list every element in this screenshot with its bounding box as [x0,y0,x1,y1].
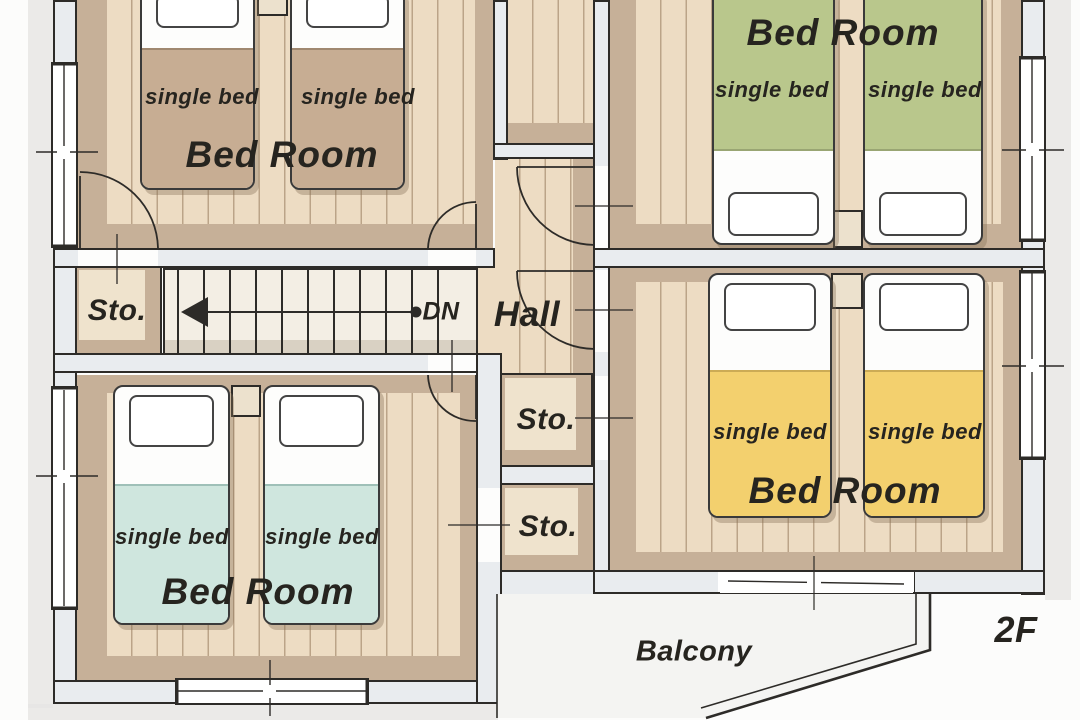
door-opening-storage-left [78,250,158,266]
bed-label: single bed [868,77,982,103]
wall-hall-left [493,0,508,160]
door-opening-storage-upper [595,376,608,460]
room-hall [495,158,593,373]
wood-floor [495,158,573,373]
pillow [279,395,364,447]
pillow [724,283,816,331]
bed-label: single bed [115,524,229,550]
pillow [879,192,967,236]
storage-label: Sto. [519,510,578,544]
nightstand [831,273,863,309]
stairs-shadow [165,340,476,354]
door-opening-storage-lower [478,488,500,562]
floor-badge: 2F [994,609,1037,651]
room-label: Bed Room [186,134,379,176]
room-label: Bed Room [162,571,355,613]
window-right-upper [1019,56,1046,242]
outside-wash-right [1045,0,1071,600]
storage-label: Sto. [517,403,576,437]
window-bottom [175,678,369,705]
wall-stairs-bottom [53,353,478,373]
bed-label: single bed [301,84,415,110]
hall-label: Hall [494,295,560,335]
door-opening-bedroom4 [595,270,608,352]
window-left-lower [51,386,78,610]
door-opening-bedroom3 [428,355,476,371]
wall-room-divider-right [593,248,1045,268]
bed-label: single bed [265,524,379,550]
room-label: Bed Room [747,12,940,54]
bed-label: single bed [715,77,829,103]
pillow [306,0,389,28]
pillow [879,283,969,331]
balcony-label: Balcony [636,636,752,669]
outside-wash-bottom [28,704,498,720]
bed-label: single bed [868,419,982,445]
floor-plan-2f: single bed single bed Bed Room single be… [0,0,1080,720]
outside-wash-left [28,0,53,708]
balcony-sliding-door [718,570,915,595]
room-label: Bed Room [749,470,942,512]
pillow [129,395,214,447]
nightstand [231,385,261,417]
window-left-upper [51,62,78,248]
nightstand [257,0,288,16]
door-opening-bedroom1 [428,250,476,266]
wood-floor [508,0,593,123]
stairs-down-label: DN [422,298,459,327]
pillow [156,0,239,28]
stair-landing-floor [476,268,495,356]
window-right-lower [1019,270,1046,460]
door-opening-bedroom2 [595,166,608,248]
bed-label: single bed [145,84,259,110]
pillow [728,192,819,236]
bed-label: single bed [713,419,827,445]
nightstand [833,210,863,248]
closet-nook [508,0,593,143]
storage-label: Sto. [88,294,147,328]
